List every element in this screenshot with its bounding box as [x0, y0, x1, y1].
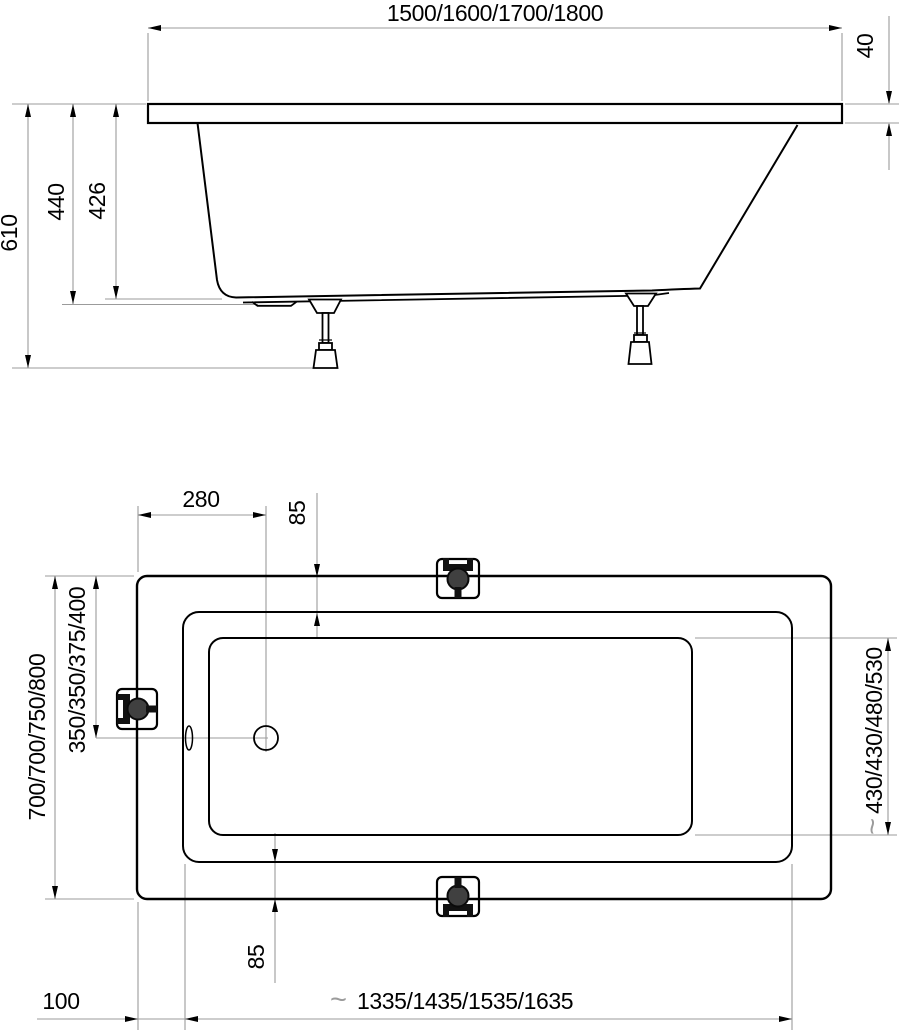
fixture-stem	[146, 706, 157, 713]
foot-leg	[637, 306, 643, 335]
fixture-stem	[455, 587, 462, 598]
foot-bracket	[626, 294, 656, 307]
dim-value-bottom-width: 430/430/480/530	[861, 647, 887, 814]
dim-label-left-offset: 100	[42, 988, 79, 1014]
tub-shell-profile	[198, 123, 798, 298]
fixture-knob	[448, 569, 469, 590]
arrow-up-icon	[93, 576, 99, 589]
arrow-right-icon	[779, 1016, 792, 1022]
approx-symbol: ~	[857, 818, 889, 835]
tub-rim-profile	[148, 104, 842, 123]
arrow-up-icon	[70, 104, 76, 117]
dim-label-drain-from-top: 350/350/375/400	[64, 587, 90, 754]
side-view: 1500/1600/1700/1800 40 610 440 426	[0, 0, 899, 368]
arrow-up-icon	[886, 123, 892, 136]
foot-base	[629, 342, 652, 364]
top-view: 280 85 700/700/750/800 350/350/375/400 ~…	[24, 486, 897, 1030]
fixture-tab	[117, 694, 125, 700]
tub-foot-right	[626, 294, 656, 365]
arrow-down-icon	[25, 355, 31, 368]
dim-label-rim-bottom: 85	[243, 945, 269, 970]
dim-label-depth-outer: 440	[43, 183, 69, 220]
arrow-down-icon	[93, 725, 99, 738]
dim-label-depth-inner: 426	[84, 182, 110, 219]
arrow-left-icon	[148, 25, 161, 31]
tub-inner-rim	[183, 612, 792, 862]
arrow-down-icon	[52, 886, 58, 899]
dim-label-overall-height: 610	[0, 214, 22, 251]
dim-label-rim-height: 40	[852, 34, 878, 59]
fixture-tab	[467, 558, 473, 566]
foot-leg	[323, 313, 329, 343]
arrow-left-icon	[185, 1016, 198, 1022]
drawing-canvas: 1500/1600/1700/1800 40 610 440 426	[0, 0, 900, 1030]
dim-label-bottom-width: ~430/430/480/530	[857, 647, 889, 835]
fixture-tab	[467, 909, 473, 917]
arrow-down-icon	[70, 291, 76, 304]
arrow-left-icon	[138, 512, 151, 518]
arrow-up-icon	[25, 104, 31, 117]
dim-value-bottom-length: 1335/1435/1535/1635	[357, 988, 573, 1014]
dim-label-drain-from-left: 280	[182, 486, 219, 512]
arrow-up-icon	[113, 104, 119, 117]
fixture-knob	[448, 886, 469, 907]
tub-foot-left	[309, 300, 341, 369]
arrow-down-icon	[272, 849, 278, 862]
arrow-up-icon	[314, 613, 320, 626]
arrow-up-icon	[272, 899, 278, 912]
fixture-tab	[117, 718, 125, 724]
fixture-tab	[443, 909, 449, 917]
approx-symbol: ~	[330, 984, 347, 1016]
foot-base	[314, 350, 338, 368]
foot-cap	[319, 343, 332, 350]
arrow-up-icon	[52, 576, 58, 589]
arrow-right-icon	[125, 1016, 138, 1022]
tub-floor-outline	[209, 638, 692, 835]
dim-label-bottom-length: ~1335/1435/1535/1635	[330, 984, 573, 1016]
dim-label-overall-width: 700/700/750/800	[24, 654, 50, 821]
fixture-tab	[443, 558, 449, 566]
foot-bracket	[309, 300, 341, 314]
arrow-right-icon	[829, 25, 842, 31]
fixture-knob	[128, 699, 149, 720]
arrow-down-icon	[886, 91, 892, 104]
foot-cap	[634, 335, 647, 342]
arrow-down-icon	[113, 286, 119, 299]
dim-label-rim-top: 85	[284, 501, 310, 526]
arrow-right-icon	[253, 512, 266, 518]
bathtub-technical-drawing: 1500/1600/1700/1800 40 610 440 426	[0, 0, 900, 1030]
fixture-stem	[455, 877, 462, 888]
dim-label-length: 1500/1600/1700/1800	[387, 0, 603, 26]
